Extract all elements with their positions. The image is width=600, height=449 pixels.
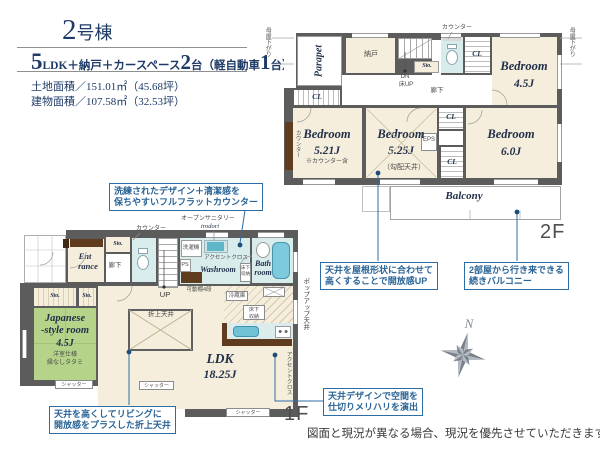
bedroom3-size: 5.25J (388, 145, 414, 158)
land-area: 土地面積／151.01㎡（45.68坪） (31, 78, 185, 94)
bedroom4-size: 6.0J (501, 146, 521, 159)
shutter-1-label: シャッター (61, 382, 86, 388)
washer-label: 洗濯機 (183, 245, 200, 252)
shutter-2: シャッター (139, 381, 174, 390)
entrance-label-1: Ent (79, 252, 92, 261)
stairs-2f (398, 38, 432, 59)
bedroom2-counter-label: カウンター (294, 130, 301, 168)
ldk-name-label: LDK (207, 352, 234, 367)
toilet-2f-counter (443, 38, 461, 41)
window (557, 124, 562, 162)
window (557, 55, 562, 89)
underfloor-wash-l1: 床下 (241, 265, 250, 271)
bedroom3-name: Bedroom (377, 128, 424, 142)
toilet-2f-bowl (446, 50, 458, 65)
balcony-door (494, 179, 538, 185)
counter-xbox (263, 287, 285, 297)
shutter-2-label: シャッター (144, 383, 169, 389)
callout-flat-counter-l1: 洗練されたデザイン＋清潔感を (114, 186, 258, 197)
callout-living-ceiling: 天井を高くしてリビングに 開放感をプラスした折上天井 (49, 406, 176, 434)
window (293, 300, 298, 324)
ps-label: PS (181, 262, 188, 269)
callout-ceiling-design-l2: 仕切りメリハリを演出 (328, 402, 418, 413)
floor2-label: 2F (540, 222, 565, 242)
closet-top-label: CL (472, 50, 482, 58)
japanese-label-1: Japanese (45, 313, 85, 325)
callout-ceiling-design-l1: 天井デザインで空間を (328, 391, 418, 402)
japanese-size-label: 4.5J (56, 338, 74, 349)
bedroom-5-21-counter (285, 122, 293, 170)
closet-mid-label: CL (446, 113, 456, 121)
window (258, 232, 284, 238)
underfloor-kitchen-box: 床下 収納 (243, 305, 265, 320)
accent-cloth2-label: アクセントクロス (285, 351, 292, 395)
shutter-3-label: シャッター (235, 410, 260, 416)
window (293, 252, 298, 272)
entry-box (63, 239, 69, 248)
bath-label-2: room (254, 269, 271, 278)
entrance-label-2: rance (78, 262, 98, 271)
callout-living-ceiling-l2: 開放感をプラスした折上天井 (54, 420, 171, 431)
moya-sagari-right: 母屋下がり (567, 27, 574, 69)
building-number: 2 (62, 14, 77, 47)
kitchen-sink (233, 326, 259, 337)
floor-up-label: 床UP (399, 82, 413, 89)
bedroom2-note: ※カウンター含 (306, 159, 348, 166)
floorplan-flyer: { "header": { "building_no": "2", "build… (0, 0, 600, 449)
moya-sagari-left: 母屋下がり (263, 27, 270, 69)
bedroom2-name: Bedroom (303, 128, 350, 142)
underfloor-wash-box: 床下 収納 (240, 263, 251, 282)
building-area: 建物面積／107.58㎡（32.53坪） (31, 93, 185, 109)
callout-roof-ceiling: 天井を屋根形状に合わせて 高くすることで開放感UP (320, 262, 438, 290)
shelf-label: 可動棚4段 (186, 287, 211, 294)
dn-label: DN (401, 74, 410, 81)
japanese-label-2: -style room (41, 325, 89, 337)
stove (275, 326, 291, 338)
disclaimer: 図面と現況が異なる場合、現況を優先させていただきます。 (307, 425, 600, 441)
coffered-ceiling-label: 折上天井 (148, 311, 174, 319)
closet-low-label: CL (447, 158, 457, 166)
balcony-door (380, 179, 420, 185)
callout-roof-ceiling-l2: 高くすることで開放感UP (325, 276, 433, 287)
japanese-note-2: 縁なしタタミ (47, 360, 83, 367)
closet-left-label: CL (312, 93, 322, 101)
sto-left2-label: Sto. (82, 293, 92, 300)
sto-left1-label: Sto. (50, 293, 60, 300)
hall-right-2f (439, 131, 463, 145)
porch (24, 235, 66, 283)
callout-flat-counter-l2: 保ちやすいフルフラットカウンター (114, 197, 258, 208)
bedroom4-name: Bedroom (487, 128, 534, 142)
kitchen-front-panel (222, 339, 292, 346)
underfloor-wash-l2: 収納 (241, 271, 250, 277)
counter-2f-label: カウンター (442, 25, 472, 32)
japanese-note-1: 洋室仕様 (53, 352, 77, 359)
bedroom1-size: 4.5J (514, 78, 534, 91)
window (22, 330, 27, 358)
sto-top-1f-label: Sto. (113, 241, 123, 248)
hallway-2f-label: 廊下 (431, 87, 444, 95)
open-sanitary-brand: irodori (201, 223, 219, 230)
popup-ceiling-label: ポップアップ天井 (301, 278, 309, 340)
eps-label: EPS (423, 137, 435, 144)
bedroom3-note: （勾配天井） (383, 164, 425, 172)
header-rule-bottom (17, 71, 247, 72)
vanity-sink (207, 242, 224, 251)
up-label: UP (160, 290, 170, 299)
toilet-1f-tank (138, 248, 148, 254)
ldk-size-label: 18.25J (204, 368, 237, 381)
toilet-1f-bowl (137, 255, 149, 270)
accent-cloth1-label: アクセントクロス (204, 255, 248, 262)
roof-edge (362, 186, 390, 212)
header-title: 2号棟 (62, 14, 113, 47)
hallway-1f-label: 廊下 (109, 262, 122, 270)
bedroom1-name: Bedroom (500, 60, 547, 74)
floor2-notch-cover (284, 33, 296, 88)
bedroom-5-21 (293, 108, 362, 178)
window (352, 33, 388, 38)
callout-flat-counter: 洗練されたデザイン＋清潔感を 保ちやすいフルフラットカウンター (109, 183, 263, 211)
header-rule-top (17, 47, 247, 48)
balcony-label: Balcony (445, 190, 482, 202)
parapet-label: Parapet (314, 45, 325, 77)
svg-text:N: N (464, 316, 475, 331)
washroom-label: Washroom (200, 266, 235, 275)
storage-2f-label: 納戸 (364, 51, 378, 59)
linen-shelf (181, 272, 202, 283)
fridge-label: 冷蔵庫 (229, 293, 246, 300)
callout-ceiling-design: 天井デザインで空間を 仕切りメリハリを演出 (323, 388, 423, 416)
window (500, 33, 540, 38)
compass-icon: N (436, 316, 491, 382)
hallway-2f (342, 75, 492, 105)
callout-balcony-l1: 2部屋から行き来できる (469, 265, 564, 276)
stairs-1f (158, 238, 178, 288)
shutter-1: シャッター (55, 380, 93, 389)
counter-1f-label: カウンター (136, 226, 166, 233)
underfloor-kitchen-l2: 収納 (244, 314, 264, 321)
callout-roof-ceiling-l1: 天井を屋根形状に合わせて (325, 265, 433, 276)
callout-balcony-l2: 続きバルコニー (469, 276, 564, 287)
shoe-cabinet (70, 239, 103, 247)
toilet-2f-tank (447, 44, 457, 49)
sto-2f-label: Sto. (422, 63, 432, 70)
callout-balcony: 2部屋から行き来できる 続きバルコニー (464, 262, 569, 290)
window (206, 232, 228, 238)
balcony-door (303, 179, 335, 185)
building-suffix: 号棟 (77, 19, 113, 45)
bedroom-6-0 (466, 108, 557, 178)
floor1-label: 1F (284, 404, 309, 424)
window (441, 33, 461, 38)
bedroom2-size: 5.21J (314, 145, 340, 158)
bath-basin (256, 242, 270, 258)
shutter-3: シャッター (226, 408, 270, 417)
callout-living-ceiling-l1: 天井を高くしてリビングに (54, 409, 171, 420)
bathtub (272, 242, 290, 279)
